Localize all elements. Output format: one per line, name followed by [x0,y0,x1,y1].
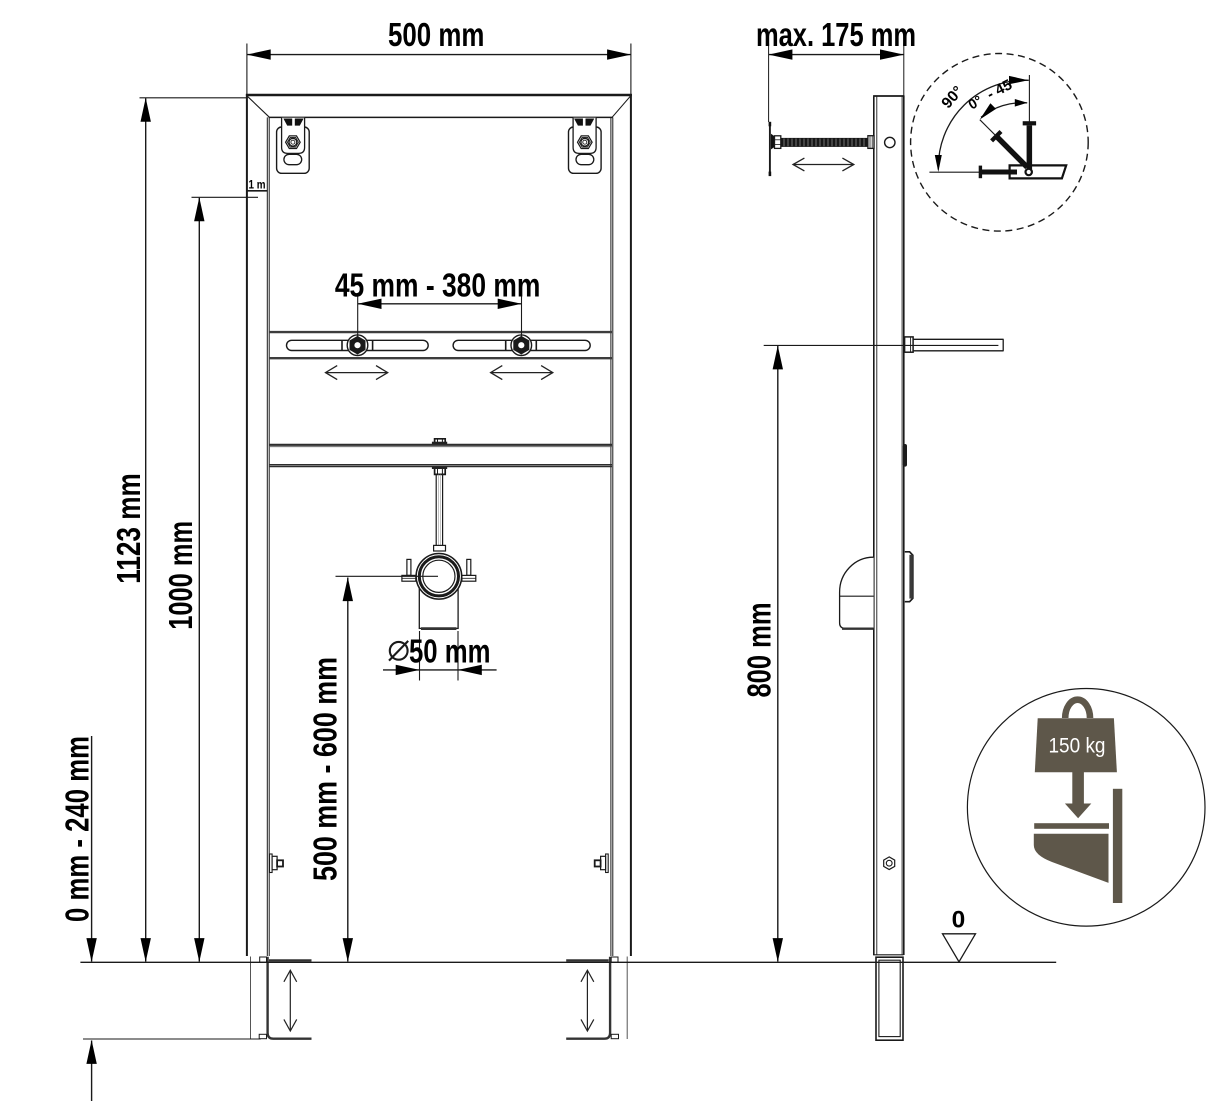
svg-text:max. 175 mm: max. 175 mm [756,16,916,53]
svg-text:150 kg: 150 kg [1049,734,1106,758]
svg-text:1123 mm: 1123 mm [110,473,147,584]
svg-text:1000 mm: 1000 mm [162,521,199,630]
svg-text:0: 0 [952,907,966,934]
svg-text:800 mm: 800 mm [741,603,778,698]
svg-text:50 mm: 50 mm [409,632,491,669]
svg-text:0 mm - 240 mm: 0 mm - 240 mm [59,736,96,922]
svg-text:500 mm - 600 mm: 500 mm - 600 mm [307,657,344,881]
svg-text:45 mm - 380 mm: 45 mm - 380 mm [335,267,541,304]
svg-text:1 m: 1 m [249,179,266,191]
svg-text:500 mm: 500 mm [388,16,484,53]
